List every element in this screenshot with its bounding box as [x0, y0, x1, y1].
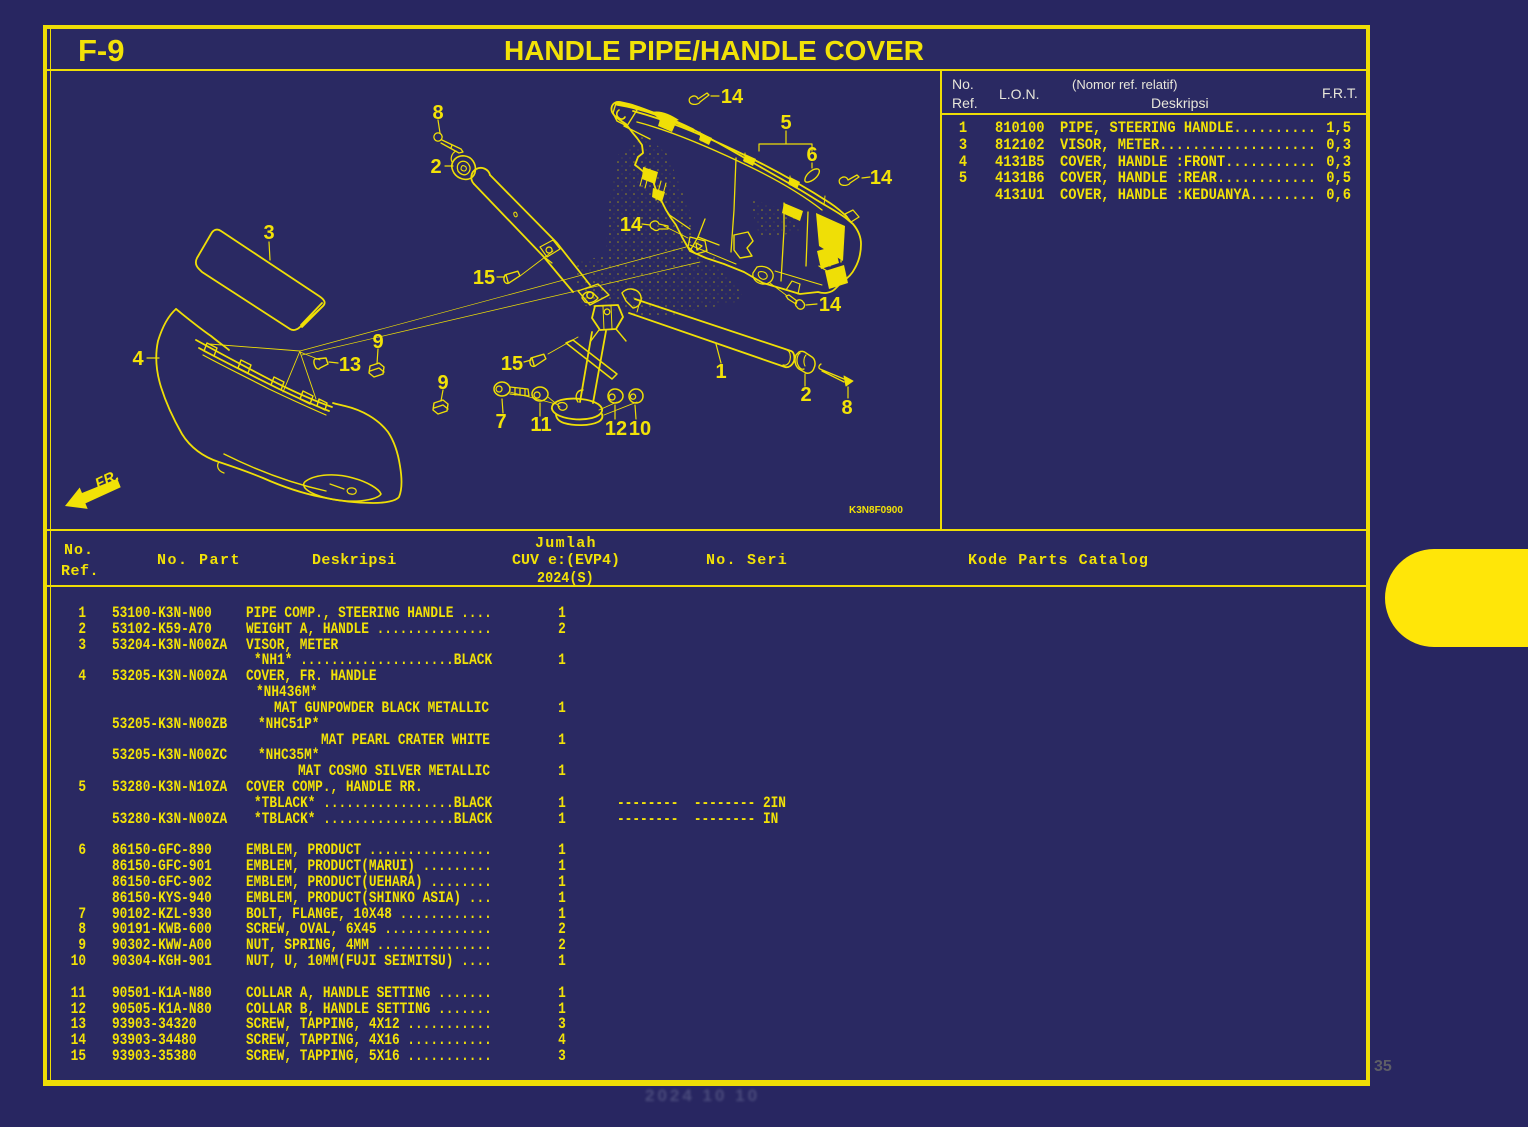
svg-text:1: 1 [715, 361, 726, 383]
svg-text:14: 14 [721, 86, 744, 108]
svg-text:K3N8F0900: K3N8F0900 [849, 505, 903, 516]
svg-text:3: 3 [263, 222, 274, 244]
svg-text:8: 8 [432, 102, 443, 124]
svg-text:14: 14 [620, 214, 643, 236]
svg-text:15: 15 [501, 353, 523, 375]
svg-text:7: 7 [495, 411, 506, 433]
svg-text:11: 11 [530, 414, 551, 436]
svg-text:9: 9 [372, 331, 383, 353]
svg-text:8: 8 [841, 397, 852, 419]
svg-text:6: 6 [806, 144, 817, 166]
svg-text:4: 4 [132, 348, 144, 370]
svg-text:13: 13 [339, 354, 361, 376]
svg-text:9: 9 [437, 372, 448, 394]
svg-text:2: 2 [430, 156, 441, 178]
svg-text:12: 12 [605, 418, 627, 440]
svg-text:15: 15 [473, 267, 495, 289]
svg-text:14: 14 [870, 167, 893, 189]
svg-text:5: 5 [780, 112, 791, 134]
svg-text:10: 10 [629, 418, 651, 440]
svg-text:14: 14 [819, 294, 842, 316]
svg-text:2: 2 [800, 384, 811, 406]
